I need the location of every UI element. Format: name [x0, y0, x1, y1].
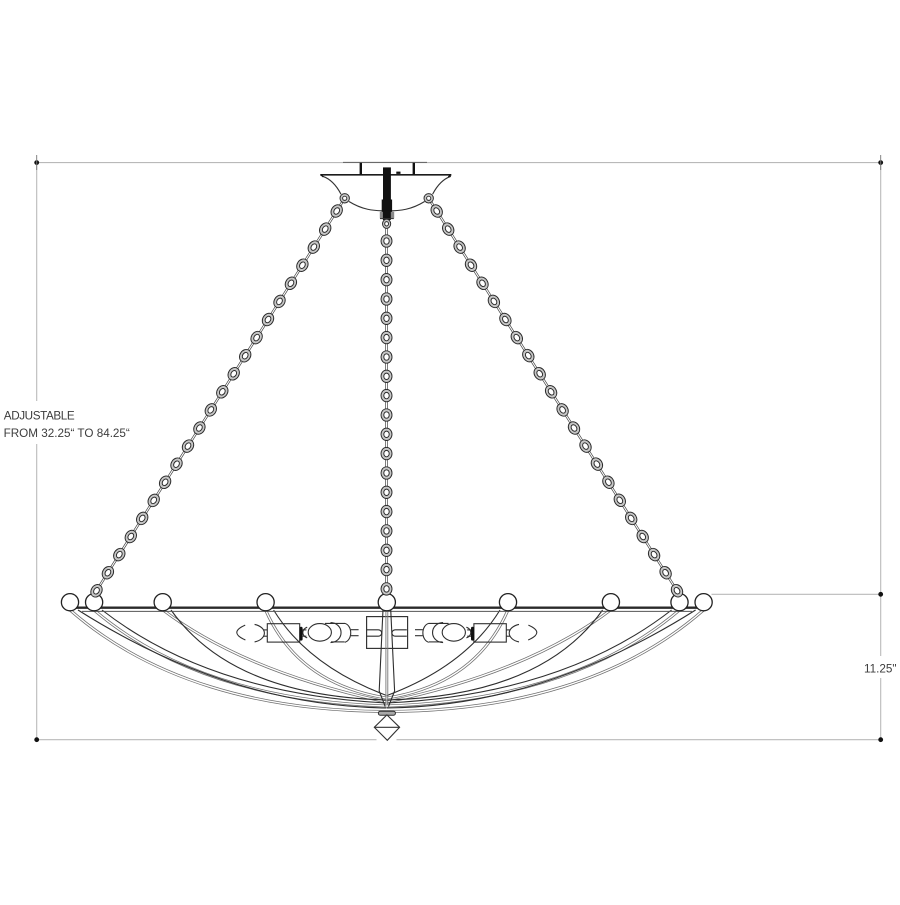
svg-text:11.25": 11.25" — [864, 662, 897, 675]
svg-text:ADJUSTABLE: ADJUSTABLE — [4, 409, 75, 422]
svg-text:FROM 32.25“ TO 84.25“: FROM 32.25“ TO 84.25“ — [4, 427, 130, 440]
